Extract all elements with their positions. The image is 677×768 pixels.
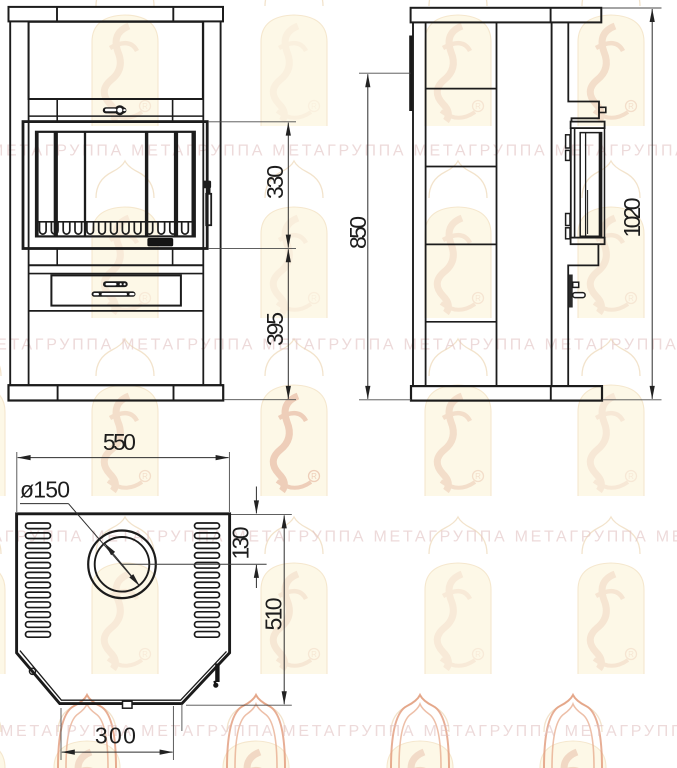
svg-text:300: 300 [95, 723, 136, 749]
svg-text:850: 850 [345, 216, 371, 249]
svg-text:130: 130 [227, 527, 253, 560]
svg-text:330: 330 [262, 165, 288, 199]
svg-text:510: 510 [260, 598, 286, 631]
svg-text:ø150: ø150 [20, 477, 70, 503]
svg-text:1020: 1020 [619, 198, 645, 238]
svg-text:550: 550 [103, 429, 136, 455]
svg-text:395: 395 [262, 312, 288, 346]
svg-text:МЕТАГРУППА МЕТАГРУППА МЕТАГРУП: МЕТАГРУППА МЕТАГРУППА МЕТАГРУППА МЕТАГРУ… [0, 336, 677, 353]
svg-text:МЕТАГРУППА МЕТАГРУППА МЕТАГРУП: МЕТАГРУППА МЕТАГРУППА МЕТАГРУППА МЕТАГРУ… [0, 142, 677, 159]
